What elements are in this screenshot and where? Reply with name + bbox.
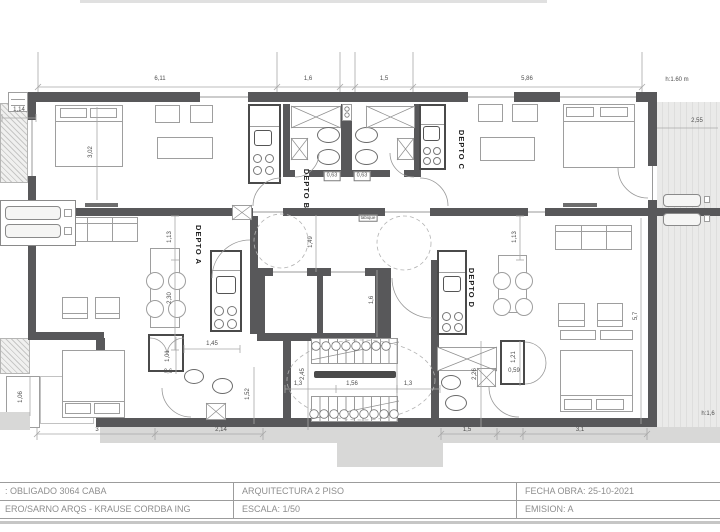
toilet-bath-2 xyxy=(355,127,378,143)
bath1-door-opening xyxy=(295,170,309,177)
pillow xyxy=(564,399,592,410)
shower-bath-2 xyxy=(366,106,415,128)
project-address: : OBLIGADO 3064 CABA xyxy=(0,483,238,500)
stove-burner xyxy=(265,166,274,175)
tv-bench-depto-d xyxy=(563,203,597,207)
stove-burner xyxy=(433,147,441,155)
work-date: FECHA OBRA: 25-10-2021 xyxy=(516,483,720,500)
pillow xyxy=(94,403,120,414)
emission: EMISION: A xyxy=(516,501,720,518)
ac-unit-right-box-2 xyxy=(704,215,710,222)
stove-burner xyxy=(253,166,262,175)
stair-flight-upper xyxy=(311,338,398,364)
sidewalk-bottom xyxy=(100,427,720,443)
coffee-table-depto-c xyxy=(480,137,535,161)
bath2-door-opening xyxy=(390,170,404,177)
kitchen-depto-d xyxy=(437,250,467,335)
elevator-cabin-1 xyxy=(265,276,317,333)
dining-chair xyxy=(168,300,186,318)
dimension-label: h:1.60 m xyxy=(665,77,688,83)
unit-label-depto-c: DEPTO C xyxy=(457,130,465,170)
sink-depto-c xyxy=(423,126,440,141)
window-top-2 xyxy=(468,92,514,102)
dining-chair xyxy=(493,298,511,316)
dimension-label: 2,45 xyxy=(300,368,306,380)
shower-tray-bath-2 xyxy=(397,138,414,160)
window-top-3 xyxy=(560,92,636,102)
wall-right xyxy=(648,92,657,427)
dimension-label: 1,45 xyxy=(206,341,218,347)
dimension-label: 5,7 xyxy=(633,312,639,320)
shower-tray-depto-d xyxy=(477,368,496,387)
dimension-label: 1,6 xyxy=(304,76,312,82)
pillow xyxy=(566,107,594,117)
dimension-label: 1,3 xyxy=(294,381,302,387)
dimension-label: 1,3 xyxy=(404,381,412,387)
toilet-depto-a xyxy=(184,369,204,384)
ac-unit-right-box-1 xyxy=(704,196,710,203)
dimension-label: 1,5 xyxy=(380,76,388,82)
stove-burner xyxy=(265,154,274,163)
closet-depto-a xyxy=(148,334,184,372)
table-depto-b xyxy=(157,137,213,159)
dimension-label: 5,86 xyxy=(521,76,533,82)
stove-burner xyxy=(214,319,224,329)
ac-unit-right-1 xyxy=(663,194,701,207)
pillow xyxy=(596,399,624,410)
stair-flight-lower xyxy=(311,396,398,422)
sink-depto-a xyxy=(216,276,236,294)
dimension-label: 1,49 xyxy=(308,236,314,248)
stove-burner xyxy=(227,319,237,329)
stove-burner xyxy=(454,323,463,332)
stove-burner xyxy=(423,147,431,155)
corner-equipment-box xyxy=(8,92,28,112)
ac-unit-left-2 xyxy=(5,224,61,238)
stair-handrail xyxy=(314,371,396,378)
shower-tray-depto-a xyxy=(206,403,226,420)
elevator-door-2 xyxy=(331,268,365,276)
dining-chair xyxy=(493,272,511,290)
ac-unit-right-2 xyxy=(663,213,701,226)
chair-depto-b-2 xyxy=(190,105,213,123)
sheet-title: ARQUITECTURA 2 PISO xyxy=(233,483,518,500)
dining-chair xyxy=(168,272,186,290)
balcony-left-upper xyxy=(0,103,28,183)
armchair-depto-c-2 xyxy=(512,104,538,122)
shower-bath-1 xyxy=(291,106,341,128)
floor-plan: 6,111,61,55,861,142,553,021,132,301,491,… xyxy=(0,0,720,532)
dining-chair xyxy=(515,298,533,316)
sofa-depto-d xyxy=(555,225,632,250)
scale: ESCALA: 1/50 xyxy=(233,501,518,518)
stove-burner xyxy=(423,157,431,165)
armchair-depto-c-1 xyxy=(478,104,503,122)
window-top-1 xyxy=(200,92,248,102)
title-block-bar xyxy=(0,521,720,524)
wall-bath-left xyxy=(283,104,290,177)
dining-chair xyxy=(146,272,164,290)
architects-engineer: ERO/SARNO ARQS - KRAUSE CORDBA ING xyxy=(0,501,238,518)
sidewalk-apron-center xyxy=(337,443,443,467)
shower-tray-bath-1 xyxy=(291,138,308,160)
terrace-upper-right xyxy=(657,102,720,208)
lightwell-left-lower xyxy=(0,338,30,374)
stove-burner xyxy=(433,157,441,165)
stove-burner xyxy=(442,323,451,332)
dimension-label: 1,13 xyxy=(512,231,518,243)
dresser-depto-d-1 xyxy=(560,330,596,340)
stove-burner xyxy=(227,306,237,316)
ac-unit-left-box-1 xyxy=(64,209,72,217)
top-edge-strip xyxy=(80,0,547,3)
armchair-depto-d-2 xyxy=(597,303,623,327)
bidet-bath-1 xyxy=(317,149,340,165)
stove-burner xyxy=(442,312,451,321)
pillow xyxy=(65,403,91,414)
pillow xyxy=(600,107,628,117)
bidet-depto-a xyxy=(212,378,233,394)
wall-left-jog xyxy=(28,332,104,340)
stove-burner xyxy=(454,312,463,321)
terrace-lower-right xyxy=(657,216,720,427)
pillow xyxy=(60,108,87,118)
dimension-label: 1,13 xyxy=(167,231,173,243)
dresser-depto-d-2 xyxy=(600,330,633,340)
opening-middle-2 xyxy=(253,208,283,216)
dining-chair xyxy=(515,272,533,290)
elevator-cabin-2 xyxy=(323,276,375,333)
unit-label-depto-a: DEPTO A xyxy=(194,225,202,265)
title-block-row-2: ERO/SARNO ARQS - KRAUSE CORDBA ING ESCAL… xyxy=(0,501,720,518)
ac-unit-left-box-2 xyxy=(64,227,72,235)
stove-burner xyxy=(253,154,262,163)
door-right-terrace xyxy=(648,166,657,200)
armchair-depto-d-1 xyxy=(558,303,585,327)
ac-unit-left-1 xyxy=(5,206,61,220)
sink-depto-b xyxy=(254,130,272,146)
dining-chair xyxy=(146,300,164,318)
shaft-pier xyxy=(232,205,252,220)
window-left-upper xyxy=(28,120,36,176)
elevator-door-1 xyxy=(273,268,307,276)
pillow xyxy=(90,108,117,118)
unit-label-depto-d: DEPTO D xyxy=(467,268,475,308)
chair-depto-b-1 xyxy=(155,105,180,123)
dimension-label: 3 xyxy=(95,427,98,433)
stove-burner xyxy=(214,306,224,316)
opening-middle-4 xyxy=(528,208,545,216)
dimension-label: 1,52 xyxy=(245,388,251,400)
sink-depto-d xyxy=(443,276,461,292)
wall-stair-left xyxy=(283,338,291,424)
toilet-bath-1 xyxy=(317,127,340,143)
title-block-row-1: : OBLIGADO 3064 CABA ARQUITECTURA 2 PISO… xyxy=(0,483,720,501)
armchair-depto-a-2 xyxy=(95,297,120,319)
bidet-bath-2 xyxy=(355,149,378,165)
dimension-label: 1,56 xyxy=(346,381,358,387)
duct-shaft xyxy=(342,104,352,121)
title-block: : OBLIGADO 3064 CABA ARQUITECTURA 2 PISO… xyxy=(0,482,720,519)
bidet-depto-d xyxy=(445,395,467,411)
toilet-depto-d xyxy=(441,375,461,390)
tv-bench-depto-a xyxy=(85,203,118,207)
closet-depto-d xyxy=(500,340,525,385)
armchair-depto-a-1 xyxy=(62,297,88,319)
sidewalk-left-corner xyxy=(0,412,30,430)
dimension-label: 6,11 xyxy=(154,76,165,82)
opening-middle-3 xyxy=(385,208,430,216)
wall-middle xyxy=(0,208,720,216)
